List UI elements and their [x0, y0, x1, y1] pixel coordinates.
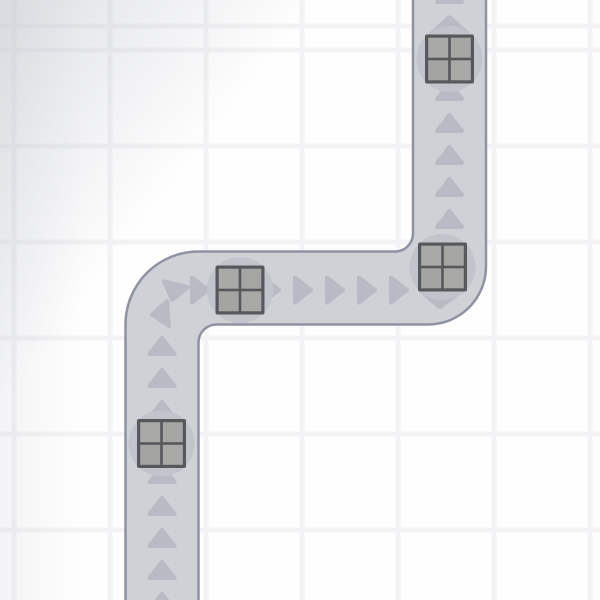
crate[interactable]	[216, 266, 265, 315]
crate[interactable]	[425, 35, 474, 84]
crate[interactable]	[137, 419, 186, 468]
belt-direction-arrow-icon	[437, 0, 462, 2]
game-viewport	[0, 0, 600, 600]
conveyor-scene	[0, 0, 600, 600]
crate[interactable]	[418, 243, 467, 292]
